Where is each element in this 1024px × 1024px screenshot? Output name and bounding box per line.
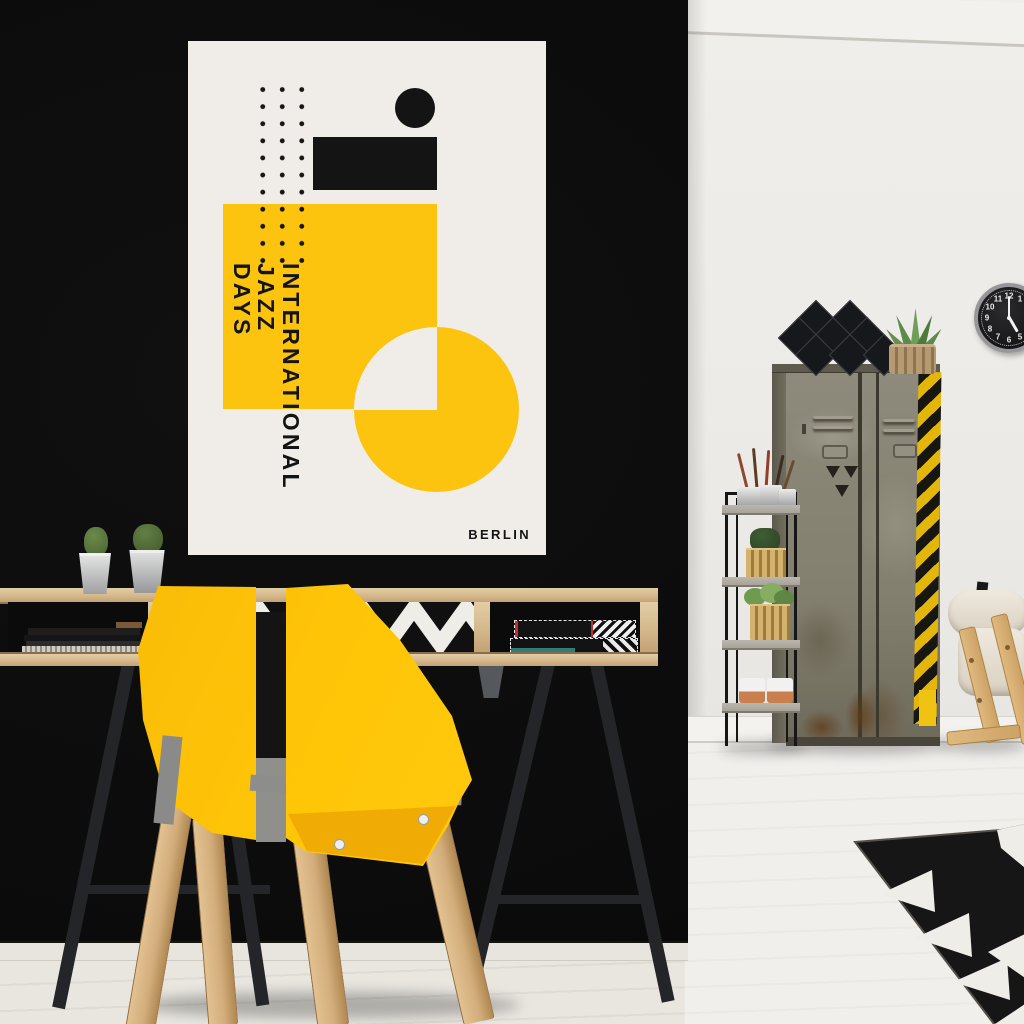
notebook-red-line xyxy=(591,621,593,637)
poster-title-line-1: INTERNATIONAL xyxy=(279,263,304,503)
desk-side-panel xyxy=(640,602,658,652)
clock-numeral-9: 9 xyxy=(985,314,989,323)
poster-yellow-circle xyxy=(354,327,519,492)
desk-divider xyxy=(148,602,162,652)
notebook xyxy=(514,620,636,638)
poster-title: INTERNATIONAL JAZZ DAYS xyxy=(230,263,304,503)
locker-vent xyxy=(883,429,915,433)
jazz-poster: INTERNATIONAL JAZZ DAYS BERLIN xyxy=(188,41,546,555)
clock-center-cap xyxy=(1007,316,1011,320)
room-scene: INTERNATIONAL JAZZ DAYS BERLIN xyxy=(0,0,1024,1024)
notebook xyxy=(510,638,638,653)
poster-dot-grid xyxy=(248,77,306,263)
clock-numeral-1: 1 xyxy=(1018,295,1022,304)
poster-circle-white-quadrant xyxy=(354,327,437,410)
locker-handle-left[interactable] xyxy=(822,445,848,459)
locker-door-gap xyxy=(876,372,879,740)
clock-numeral-5: 5 xyxy=(1018,333,1022,342)
book-spine xyxy=(28,628,140,635)
chair-felt-liner xyxy=(256,758,286,842)
zigzag-drawer[interactable] xyxy=(162,602,474,652)
locker-vent xyxy=(813,426,853,430)
desk-divider xyxy=(474,602,490,652)
locker-door-gap xyxy=(858,372,862,740)
chair-bolt xyxy=(418,814,429,825)
copper-bowl xyxy=(739,678,765,703)
poster-title-line-3: DAYS xyxy=(230,263,255,503)
chair-bolt xyxy=(334,839,345,850)
poster-title-line-2: JAZZ xyxy=(254,263,279,503)
shelf-board xyxy=(722,577,800,587)
notebook-triangle-pattern xyxy=(603,639,637,652)
desk-open-compartment-right xyxy=(490,602,640,652)
notebook-stripe-pattern xyxy=(593,621,635,637)
hazard-tape-yellow-end xyxy=(919,690,936,726)
clock-minute-hand xyxy=(1008,296,1010,318)
log-planter-pot xyxy=(889,344,936,374)
chair-slot-cutout xyxy=(256,612,286,762)
shelf-board xyxy=(722,703,800,713)
locker-vent xyxy=(813,416,853,420)
locker-vent xyxy=(883,419,915,423)
shelf-board xyxy=(722,640,800,650)
trestle-crossbar xyxy=(490,895,650,904)
clock-numeral-7: 7 xyxy=(996,333,1000,342)
geometric-rug xyxy=(845,820,1024,1024)
hazard-stripe-tape xyxy=(914,372,942,724)
futon-bolt xyxy=(1005,645,1010,650)
poster-black-rectangle xyxy=(313,137,437,190)
locker-hinge xyxy=(802,424,806,434)
clock-numeral-8: 8 xyxy=(988,325,992,334)
clock-numeral-6: 6 xyxy=(1007,336,1011,345)
poster-city-label: BERLIN xyxy=(468,527,531,542)
notebook-red-edge xyxy=(515,621,518,637)
copper-bowl xyxy=(767,678,793,703)
shelf-board xyxy=(722,505,800,515)
wall-corner-shadow xyxy=(685,0,707,740)
locker-handle-right[interactable] xyxy=(893,444,917,458)
cactus-plant xyxy=(84,527,108,557)
poster-black-circle xyxy=(395,88,435,128)
zigzag-pattern xyxy=(162,602,474,652)
futon-bolt xyxy=(977,698,982,703)
desk-bottom-board xyxy=(0,652,658,666)
baseboard-left xyxy=(0,941,688,961)
clock-numeral-10: 10 xyxy=(986,303,995,312)
cactus-plant xyxy=(133,524,163,554)
clock-numeral-11: 11 xyxy=(994,295,1002,304)
gold-pot xyxy=(750,604,790,642)
rust-patch xyxy=(845,690,875,742)
futon-bolt xyxy=(969,658,974,663)
desk-open-compartment-left xyxy=(8,602,148,652)
locker-base xyxy=(786,737,940,746)
